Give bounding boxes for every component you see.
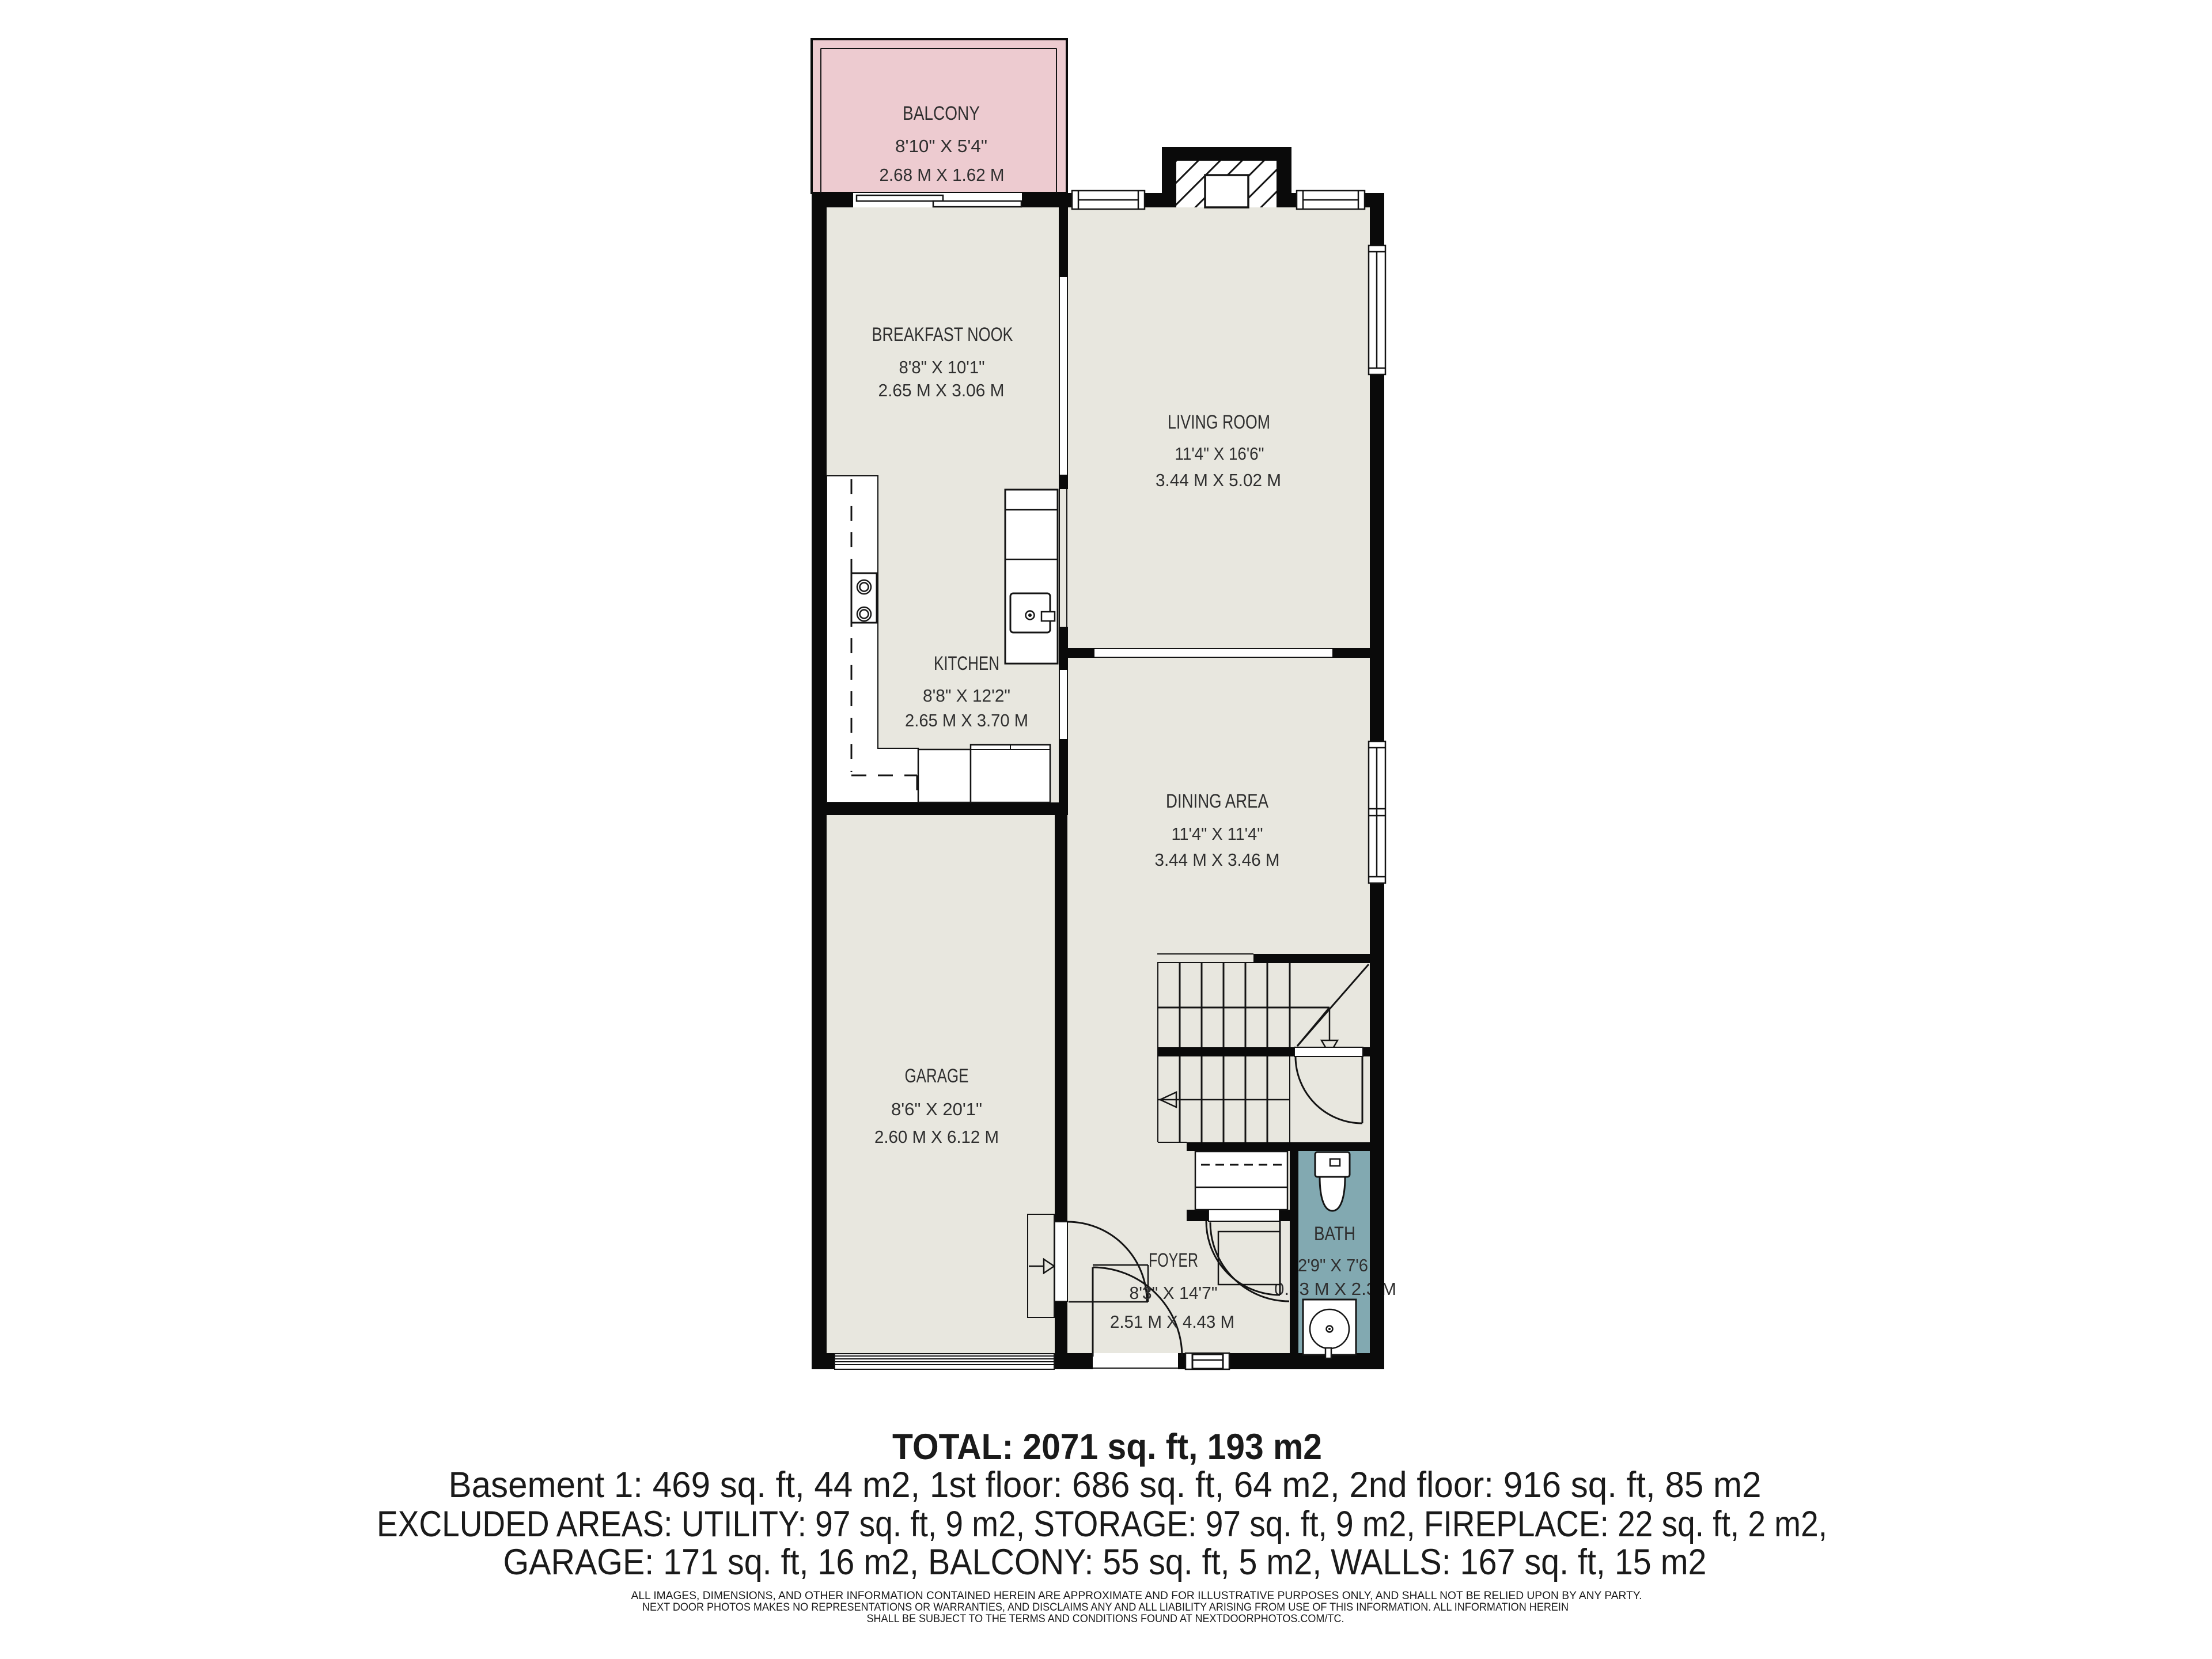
svg-text:2.65 M X 3.06 M: 2.65 M X 3.06 M bbox=[878, 381, 1005, 400]
svg-text:BATH: BATH bbox=[1314, 1223, 1355, 1245]
svg-text:SHALL BE SUBJECT TO THE TERMS: SHALL BE SUBJECT TO THE TERMS AND CONDIT… bbox=[867, 1613, 1344, 1625]
svg-text:NEXT DOOR PHOTOS MAKES NO REPR: NEXT DOOR PHOTOS MAKES NO REPRESENTATION… bbox=[642, 1601, 1569, 1613]
svg-text:BREAKFAST NOOK: BREAKFAST NOOK bbox=[872, 324, 1013, 346]
svg-text:11'4" X 11'4": 11'4" X 11'4" bbox=[1172, 824, 1263, 844]
svg-text:11'4" X 16'6": 11'4" X 16'6" bbox=[1175, 444, 1264, 464]
svg-text:2.65 M X 3.70 M: 2.65 M X 3.70 M bbox=[905, 711, 1028, 730]
svg-text:FOYER: FOYER bbox=[1149, 1249, 1198, 1271]
svg-text:2.51 M X 4.43 M: 2.51 M X 4.43 M bbox=[1110, 1312, 1234, 1332]
svg-text:Basement 1: 469 sq. ft, 44 m2,: Basement 1: 469 sq. ft, 44 m2, 1st floor… bbox=[449, 1465, 1762, 1505]
svg-text:ALL IMAGES, DIMENSIONS, AND OT: ALL IMAGES, DIMENSIONS, AND OTHER INFORM… bbox=[631, 1590, 1642, 1602]
svg-text:GARAGE: 171 sq. ft, 16 m2, BAL: GARAGE: 171 sq. ft, 16 m2, BALCONY: 55 s… bbox=[503, 1542, 1707, 1582]
svg-text:3.44 M X 5.02 M: 3.44 M X 5.02 M bbox=[1156, 471, 1281, 490]
svg-text:8'10" X 5'4": 8'10" X 5'4" bbox=[895, 137, 987, 156]
svg-text:3.44 M X 3.46 M: 3.44 M X 3.46 M bbox=[1155, 850, 1280, 870]
svg-text:2'9" X 7'6: 2'9" X 7'6 bbox=[1298, 1256, 1368, 1275]
svg-text:EXCLUDED AREAS: UTILITY: 97 sq: EXCLUDED AREAS: UTILITY: 97 sq. ft, 9 m2… bbox=[377, 1504, 1827, 1544]
svg-text:GARAGE: GARAGE bbox=[905, 1065, 969, 1087]
svg-text:2.60 M X 6.12 M: 2.60 M X 6.12 M bbox=[874, 1127, 999, 1147]
svg-text:8'8" X 12'2": 8'8" X 12'2" bbox=[923, 686, 1010, 706]
svg-text:8'6" X 20'1": 8'6" X 20'1" bbox=[891, 1100, 982, 1119]
svg-text:KITCHEN: KITCHEN bbox=[934, 653, 999, 675]
svg-text:BALCONY: BALCONY bbox=[903, 103, 980, 124]
svg-text:2.68 M X 1.62 M: 2.68 M X 1.62 M bbox=[880, 165, 1005, 185]
svg-text:DINING AREA: DINING AREA bbox=[1166, 790, 1268, 812]
svg-text:8'8" X 10'1": 8'8" X 10'1" bbox=[899, 358, 985, 377]
svg-text:TOTAL: 2071 sq. ft, 193 m2: TOTAL: 2071 sq. ft, 193 m2 bbox=[892, 1427, 1322, 1467]
svg-text:8'3" X 14'7": 8'3" X 14'7" bbox=[1130, 1283, 1218, 1303]
svg-text:LIVING ROOM: LIVING ROOM bbox=[1168, 411, 1270, 433]
